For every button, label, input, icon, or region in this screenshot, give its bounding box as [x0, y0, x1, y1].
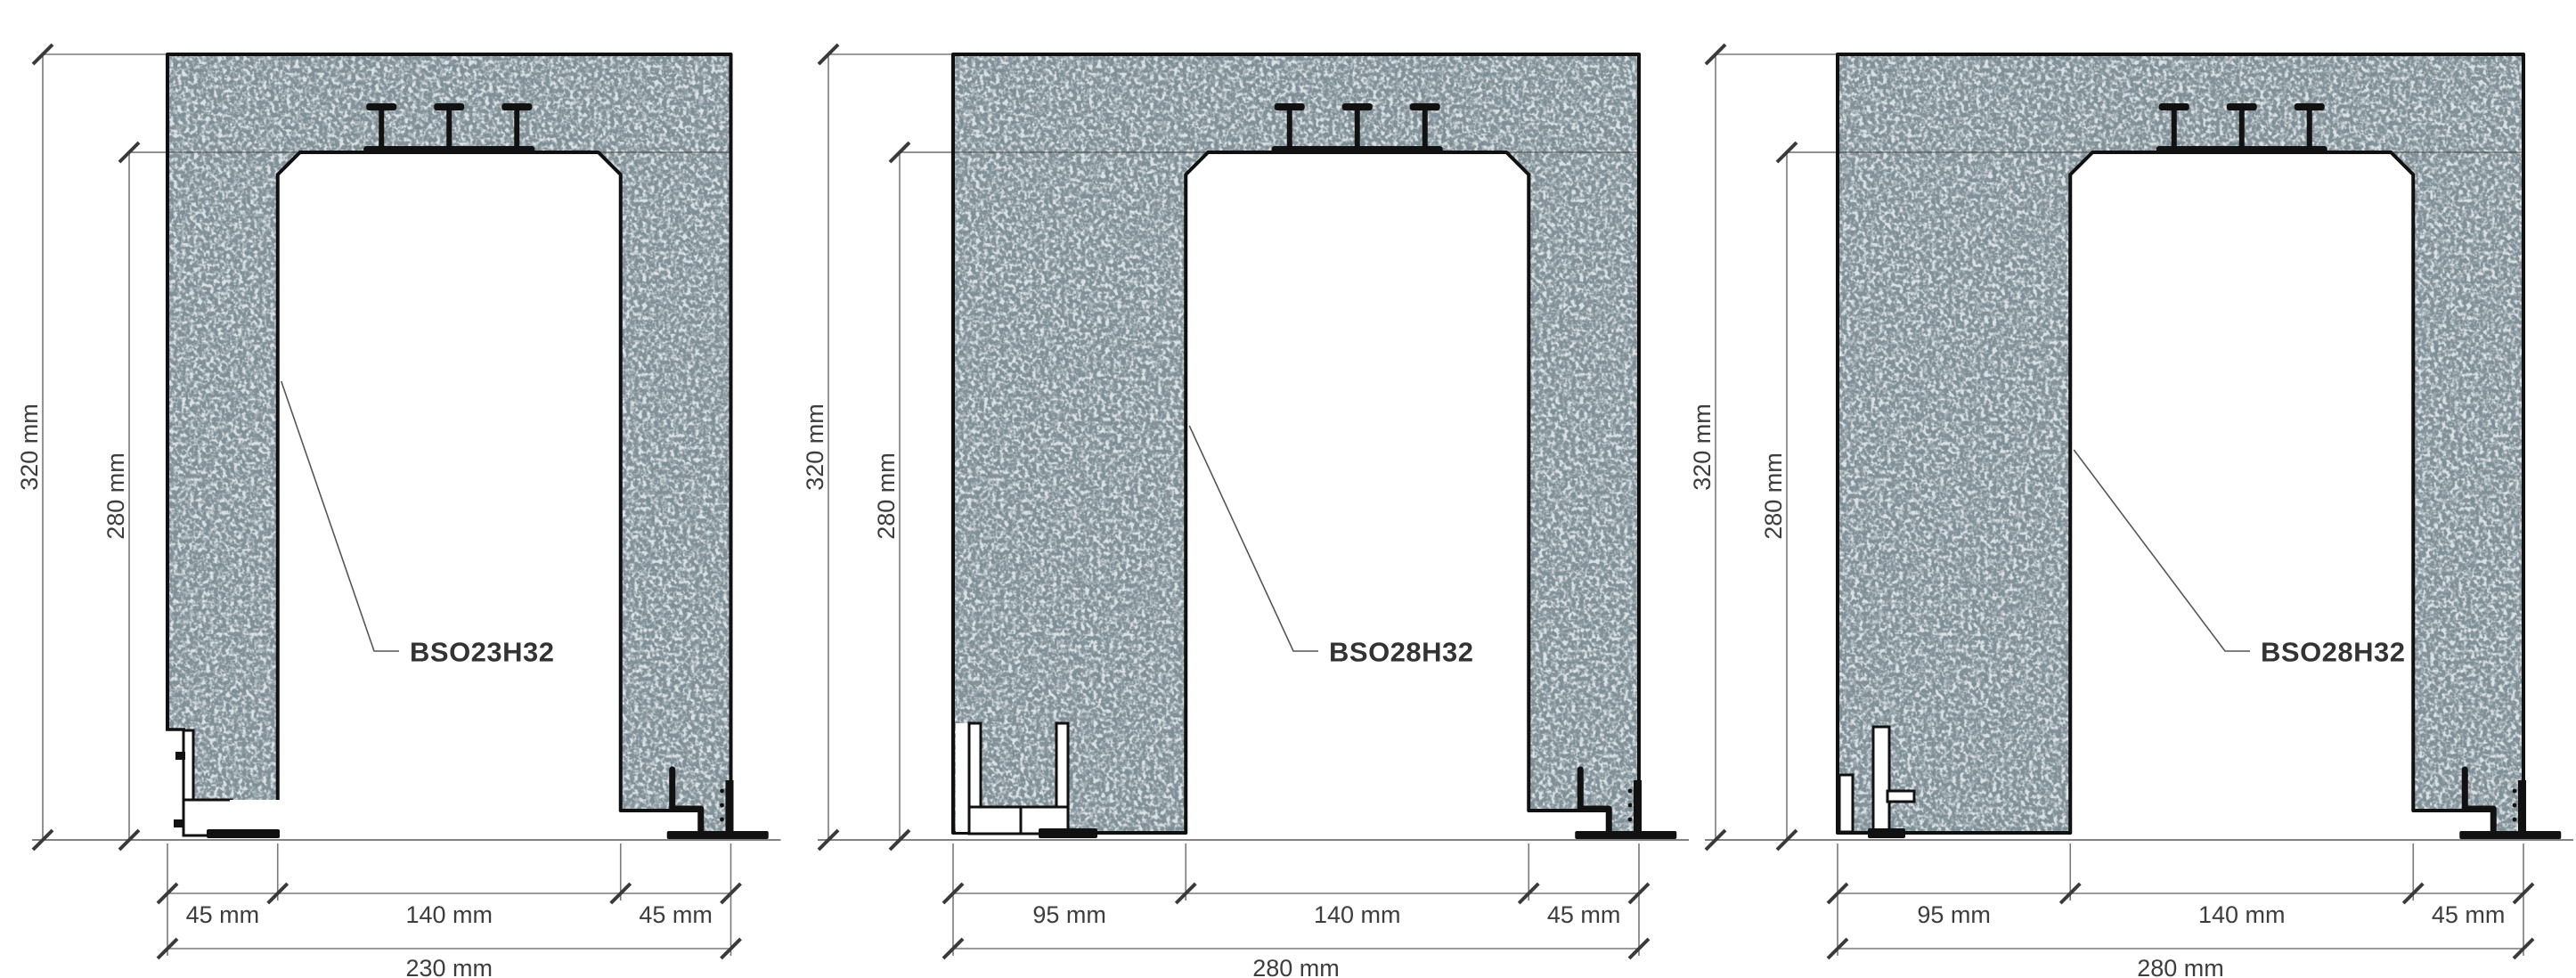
profile-callout: BSO28H32	[1189, 426, 1473, 668]
dimension-label: 140 mm	[405, 901, 493, 928]
dimension-label: 320 mm	[802, 403, 828, 491]
leader-line	[281, 381, 399, 651]
dimension-label: 140 mm	[2198, 901, 2286, 928]
profile-label: BSO28H32	[1329, 637, 1474, 668]
dimension-label: 95 mm	[1917, 901, 1991, 928]
dimension-label: 280 mm	[873, 452, 900, 540]
dimension-label: 140 mm	[1314, 901, 1401, 928]
concrete-wall-section	[948, 49, 1644, 842]
dimension-label: 45 mm	[1547, 901, 1621, 928]
profile-callout: BSO23H32	[281, 381, 555, 668]
profile-label: BSO28H32	[2261, 637, 2406, 668]
dimension-label: 320 mm	[16, 403, 43, 491]
leader-line	[2074, 450, 2250, 651]
dimension-label: 280 mm	[1252, 955, 1340, 978]
diagram-left: 320 mm280 mm45 mm140 mm45 mm230 mmBSO23H…	[0, 0, 802, 978]
concrete-wall-section	[162, 49, 737, 842]
dimension-label: 280 mm	[1760, 452, 1787, 540]
profile-label: BSO23H32	[410, 637, 555, 668]
leader-line	[1189, 426, 1318, 651]
dimension-label: 230 mm	[405, 955, 493, 978]
concrete-wall-section	[1832, 49, 2529, 842]
dimensions: 320 mm280 mm95 mm140 mm45 mm280 mm	[802, 45, 1649, 978]
dimensions: 320 mm280 mm95 mm140 mm45 mm280 mm	[1689, 45, 2533, 978]
cross-section-drawing: 320 mm280 mm95 mm140 mm45 mm280 mmBSO28H…	[1689, 0, 2576, 978]
cross-section-drawing: 320 mm280 mm45 mm140 mm45 mm230 mmBSO23H…	[0, 0, 802, 978]
dimension-label: 45 mm	[639, 901, 713, 928]
dimension-label: 280 mm	[2137, 955, 2224, 978]
drawing-canvas: 320 mm280 mm45 mm140 mm45 mm230 mmBSO23H…	[0, 0, 2576, 978]
cross-section-drawing: 320 mm280 mm95 mm140 mm45 mm280 mmBSO28H…	[802, 0, 1689, 978]
dimension-label: 45 mm	[2432, 901, 2506, 928]
dimension-label: 280 mm	[102, 452, 129, 540]
diagram-right: 320 mm280 mm95 mm140 mm45 mm280 mmBSO28H…	[1689, 0, 2576, 978]
dimension-label: 320 mm	[1689, 403, 1716, 491]
diagram-middle: 320 mm280 mm95 mm140 mm45 mm280 mmBSO28H…	[802, 0, 1689, 978]
dimension-label: 45 mm	[186, 901, 260, 928]
profile-callout: BSO28H32	[2074, 450, 2405, 668]
dimension-label: 95 mm	[1032, 901, 1106, 928]
